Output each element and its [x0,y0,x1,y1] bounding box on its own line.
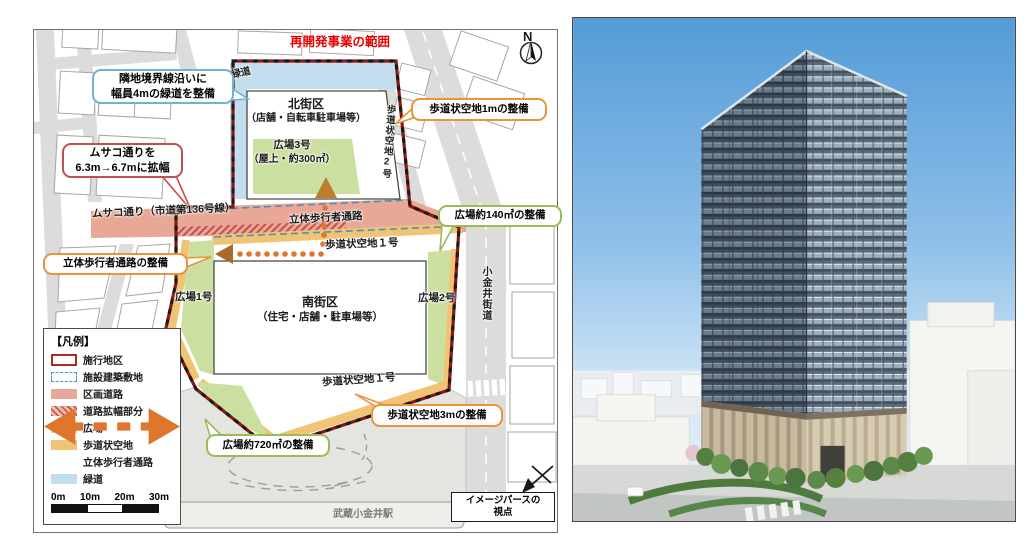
tower-rendering-graphic [573,18,1015,521]
callout-plaza-140: 広場約140㎡の整備 [438,205,562,227]
north-block-use: （店舗・自転車駐車場等） [206,113,406,124]
compass-n-label: N [523,30,532,44]
page-root: 再開発事業の範囲 N 緑道 北街区 （店舗・自転車駐車場等） 広場3号 （屋上・… [0,0,1024,546]
legend-box: 【凡例】 施行地区 施設建築敷地 区画道路 道路拡幅部分 広場 [43,328,181,525]
koganei-kaido-label: 小金井街道 [480,266,491,321]
callout-greenway-line2: 幅員4mの緑道を整備 [94,87,232,101]
south-block-use: （住宅・店舗・駐車場等） [210,312,430,324]
callout-walkspace-3m: 歩道状空地3mの整備 [371,404,503,427]
plaza2-label: 広場2号 [418,293,455,305]
redevelopment-range-label: 再開発事業の範囲 [290,36,390,50]
plaza3-note: （屋上・約300㎡） [222,154,362,165]
callout-plaza-720: 広場約720㎡の整備 [206,434,330,457]
station-label: 武蔵小金井駅 [303,509,423,520]
callout-musako-widening: ムサコ通りを 6.3m→6.7mに拡幅 [62,143,183,178]
plaza1-label: 広場1号 [175,292,212,304]
south-block-name: 南街区 [240,296,400,309]
callout-greenway: 隣地境界線沿いに 幅員4mの緑道を整備 [92,69,234,104]
deck-arrow-swatch [51,457,77,467]
viewpoint-line1: イメージパースの [452,495,554,507]
viewpoint-line2: 視点 [452,507,554,519]
plaza3-name: 広場3号 [232,140,352,152]
legend-item-deck: 立体歩行者通路 [51,453,173,470]
vehicle [627,487,643,496]
callout-musako-line2: 6.3m→6.7mに拡幅 [64,161,181,175]
callout-pedestrian-deck: 立体歩行者通路の整備 [43,253,188,275]
perspective-viewpoint-box: イメージパースの 視点 [451,492,555,522]
callout-musako-line1: ムサコ通りを [64,146,181,160]
site-plan-panel: 再開発事業の範囲 N 緑道 北街区 （店舗・自転車駐車場等） 広場3号 （屋上・… [33,29,558,533]
callout-walkspace-1m: 歩道状空地1mの整備 [411,98,547,121]
callout-greenway-line1: 隣地境界線沿いに [94,72,232,86]
north-compass [521,41,542,64]
north-block-name: 北街区 [226,98,386,111]
tower-rendering-panel [572,17,1016,522]
tower [701,51,906,414]
